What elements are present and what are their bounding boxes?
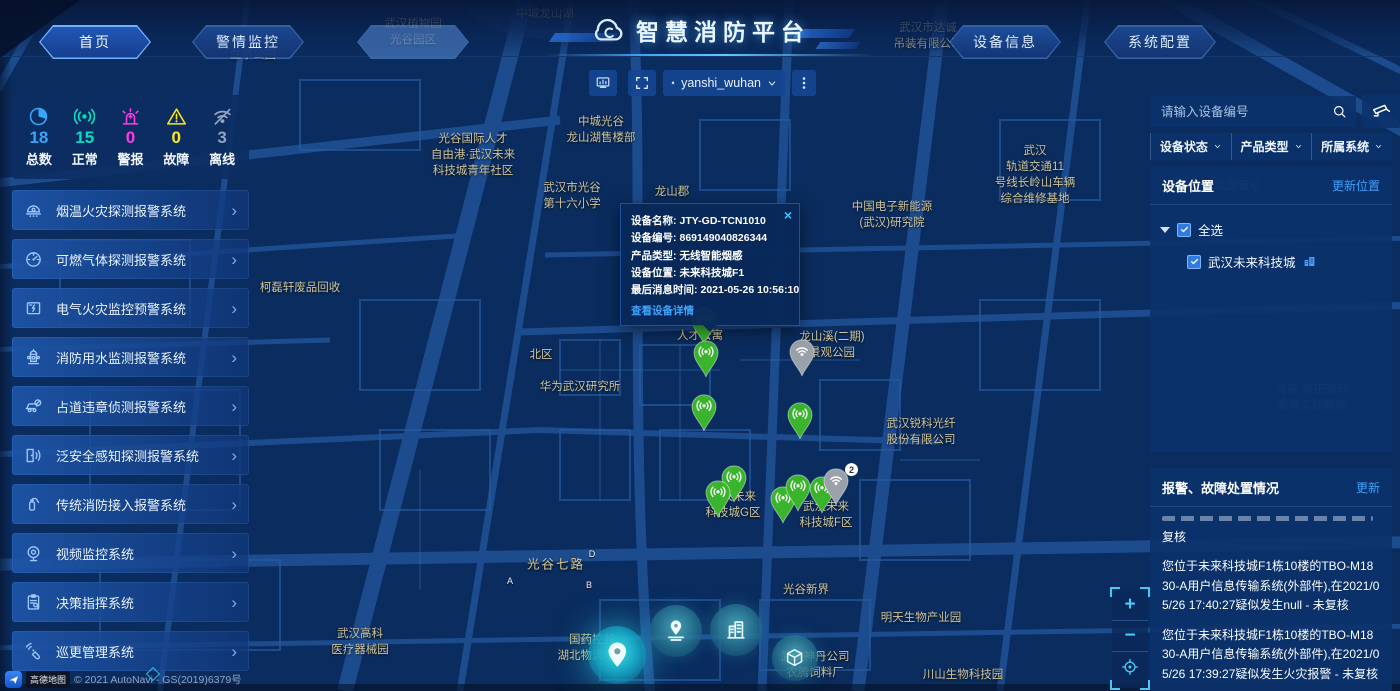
tree-row-select-all[interactable]: 全选 (1160, 220, 1382, 239)
alert-message: 复核 (1162, 516, 1380, 547)
stat-label: 正常 (72, 149, 98, 168)
menu-item-label: 决策指挥系统 (56, 593, 134, 612)
menu-item-label: 巡更管理系统 (56, 642, 134, 661)
stat-item: 15 正常 (62, 106, 108, 173)
popup-field-key: 设备位置: (631, 267, 677, 279)
device-marker[interactable] (785, 402, 815, 440)
menu-item-icon (24, 495, 43, 514)
chevron-right-icon: › (231, 398, 237, 415)
popup-row: 最后消息时间:2021-05-26 10:56:10 (631, 282, 789, 299)
system-menu-item[interactable]: 传统消防接入报警系统 › (12, 484, 249, 524)
poi-circle-icon (724, 618, 748, 642)
account-name: yanshi_wuhan (681, 76, 761, 90)
select-all-checkbox[interactable] (1177, 223, 1191, 237)
stat-label: 故障 (163, 149, 189, 168)
locate-icon (1121, 658, 1139, 676)
device-marker[interactable] (691, 340, 721, 378)
search-input[interactable] (1159, 104, 1326, 120)
tree-row-site[interactable]: 武汉未来科技城 (1160, 252, 1382, 271)
close-icon[interactable]: × (784, 208, 792, 222)
poi-circle[interactable] (650, 605, 702, 657)
stat-value: 18 (29, 128, 48, 148)
device-marker[interactable] (787, 339, 817, 377)
system-menu-item[interactable]: 可燃气体探测报警系统 › (12, 239, 249, 279)
marker-pin-icon (689, 394, 719, 432)
system-menu: 烟温火灾探测报警系统 › 可燃气体探测报警系统 › 电气火灾监控预警系统 › 消… (12, 190, 249, 671)
chevron-right-icon: › (231, 594, 237, 611)
menu-item-label: 泛安全感知探测报警系统 (56, 446, 199, 465)
popup-field-value: 2021-05-26 10:56:10 (701, 284, 800, 296)
kebab-menu-icon (796, 75, 812, 91)
copyright-text: © 2021 AutoNavi - GS(2019)6379号 (74, 672, 242, 687)
stat-item: 3 离线 (199, 106, 245, 173)
device-marker[interactable]: 2 (821, 468, 851, 506)
marker-count-badge: 2 (845, 463, 858, 476)
search-icon[interactable] (1332, 104, 1347, 119)
device-search-bar (1150, 96, 1356, 127)
menu-item-label: 视频监控系统 (56, 544, 134, 563)
view-device-details-link[interactable]: 查看设备详情 (631, 303, 789, 318)
alerts-panel-title: 报警、故障处置情况 (1162, 478, 1279, 497)
smart-fire-platform-screen: 中城龙山湖兰亭公园武汉植物园 光谷园区武汉市达诚 吊装有限公司光谷国际人才 自由… (0, 0, 1400, 691)
amap-badge: 高德地图 (26, 671, 70, 688)
stat-label: 离线 (209, 149, 235, 168)
menu-item-icon (24, 397, 43, 416)
update-location-link[interactable]: 更新位置 (1332, 177, 1380, 194)
marker-pin-icon (703, 480, 733, 518)
device-filter-bar: 设备状态 产品类型 所属系统 (1150, 133, 1392, 160)
tree-collapse-icon[interactable] (1160, 227, 1170, 233)
poi-circle-icon (664, 619, 688, 643)
system-menu-item[interactable]: 烟温火灾探测报警系统 › (12, 190, 249, 230)
device-info-popup: 设备名称:JTY-GD-TCN1010 设备编号:869149040826344… (620, 203, 800, 326)
menu-item-icon (24, 446, 43, 465)
popup-field-value: 无线智能烟感 (680, 250, 743, 262)
check-icon (1180, 225, 1189, 234)
poi-circle-icon (604, 642, 631, 669)
menu-item-icon (24, 348, 43, 367)
chevron-down-icon (1294, 143, 1303, 150)
marker-pin-icon (785, 402, 815, 440)
popup-field-value: JTY-GD-TCN1010 (680, 215, 766, 227)
tree-label: 全选 (1198, 220, 1223, 239)
cloud-logo-icon (590, 17, 626, 43)
chevron-right-icon: › (231, 202, 237, 219)
zoom-out-button[interactable]: − (1112, 620, 1148, 651)
cctv-button[interactable] (1362, 94, 1400, 128)
system-menu-item[interactable]: 电气火灾监控预警系统 › (12, 288, 249, 328)
amap-logo-icon (5, 671, 22, 688)
alerts-panel: 报警、故障处置情况 更新 复核您位于未来科技城F1栋10楼的TBO-M1830-… (1150, 468, 1392, 691)
poi-circle[interactable] (588, 626, 646, 684)
popup-row: 设备位置:未来科技城F1 (631, 265, 789, 282)
stat-value: 0 (126, 128, 135, 148)
marker-pin-icon (787, 339, 817, 377)
filter-dropdown[interactable]: 所属系统 (1311, 133, 1392, 160)
menu-item-icon (24, 299, 43, 318)
menu-item-icon (24, 250, 43, 269)
chart-tool-button[interactable] (589, 70, 617, 96)
popup-field-key: 最后消息时间: (631, 284, 698, 296)
refresh-alerts-link[interactable]: 更新 (1356, 479, 1380, 496)
popup-field-key: 设备名称: (631, 215, 677, 227)
chevron-right-icon: › (231, 545, 237, 562)
more-options-button[interactable] (792, 70, 816, 96)
corner-bracket (1140, 680, 1150, 690)
building-icon (1303, 255, 1316, 268)
poi-circle[interactable] (710, 604, 762, 656)
chevron-right-icon: › (231, 349, 237, 366)
system-menu-item[interactable]: 决策指挥系统 › (12, 582, 249, 622)
popup-row: 设备名称:JTY-GD-TCN1010 (631, 213, 789, 230)
alert-message: 您位于未来科技城F1栋10楼的TBO-M1830-A用户信息传输系统(外部件),… (1162, 626, 1380, 684)
popup-row: 产品类型:无线智能烟感 (631, 248, 789, 265)
system-menu-item[interactable]: 巡更管理系统 › (12, 631, 249, 671)
chevron-right-icon: › (231, 496, 237, 513)
popup-field-value: 869149040826344 (680, 232, 768, 244)
menu-item-label: 传统消防接入报警系统 (56, 495, 186, 514)
stat-icon (166, 106, 187, 127)
stat-icon (74, 106, 95, 127)
menu-item-label: 占道违章侦测报警系统 (56, 397, 186, 416)
stat-icon (120, 106, 141, 127)
alerts-list: 复核您位于未来科技城F1栋10楼的TBO-M1830-A用户信息传输系统(外部件… (1150, 507, 1392, 691)
device-stats-panel: 18 总数 15 正常 0 警报 0 故障 3 (12, 95, 249, 179)
stat-icon (212, 106, 233, 127)
menu-item-icon (24, 544, 43, 563)
device-marker[interactable] (689, 394, 719, 432)
corner-bracket (1110, 587, 1120, 597)
fullscreen-button[interactable] (628, 70, 656, 96)
menu-item-icon (24, 642, 43, 661)
fullscreen-icon (634, 75, 650, 91)
chevron-right-icon: › (231, 251, 237, 268)
system-menu-item[interactable]: 泛安全感知探测报警系统 › (12, 435, 249, 475)
stat-item: 18 总数 (16, 106, 62, 173)
alert-message: 您位于未来科技城F1栋10楼的TBO-M1830-A用户信息传输系统(外部件),… (1162, 557, 1380, 615)
stat-value: 15 (75, 128, 94, 148)
chevron-down-icon (1374, 143, 1383, 150)
chevron-down-icon (767, 79, 777, 88)
filter-label: 设备状态 (1160, 138, 1208, 155)
page-title: 智慧消防平台 (636, 13, 810, 47)
filter-label: 产品类型 (1241, 138, 1289, 155)
corner-bracket (1110, 680, 1120, 690)
menu-item-label: 烟温火灾探测报警系统 (56, 201, 186, 220)
filter-dropdown[interactable]: 产品类型 (1231, 133, 1312, 160)
popup-row: 设备编号:869149040826344 (631, 230, 789, 247)
locate-button[interactable] (1112, 651, 1148, 682)
popup-field-key: 设备编号: (631, 232, 677, 244)
left-frame-shade (0, 56, 12, 691)
chevron-right-icon: › (231, 447, 237, 464)
map-zoom-control: + − (1112, 589, 1148, 688)
poi-circle[interactable] (772, 635, 818, 681)
chevron-right-icon: › (231, 643, 237, 660)
stat-label: 警报 (117, 149, 143, 168)
title-streak (816, 42, 861, 49)
bell-icon (671, 75, 675, 91)
system-menu-item[interactable]: 消防用水监测报警系统 › (12, 337, 249, 377)
device-location-panel: 设备位置 更新位置 全选 武汉未来科技城 (1150, 166, 1392, 452)
chevron-right-icon: › (231, 300, 237, 317)
stat-value: 0 (172, 128, 181, 148)
alerts-panel-header: 报警、故障处置情况 更新 (1150, 468, 1392, 507)
corner-decoration (0, 0, 80, 58)
device-marker[interactable] (703, 480, 733, 518)
system-menu-item[interactable]: 占道违章侦测报警系统 › (12, 386, 249, 426)
location-tree: 全选 武汉未来科技城 (1150, 205, 1392, 299)
popup-field-key: 产品类型: (631, 250, 677, 262)
stat-item: 0 故障 (153, 106, 199, 173)
stat-icon (28, 106, 49, 127)
title-underline (545, 54, 875, 56)
stat-item: 0 警报 (108, 106, 154, 173)
location-panel-title: 设备位置 (1162, 176, 1214, 195)
marker-pin-icon (691, 340, 721, 378)
map-attribution: 高德地图 © 2021 AutoNavi - GS(2019)6379号 (5, 671, 242, 688)
stat-label: 总数 (26, 149, 52, 168)
chevron-down-icon (1213, 143, 1222, 150)
location-panel-header: 设备位置 更新位置 (1150, 166, 1392, 205)
popup-field-value: 未来科技城F1 (680, 267, 745, 279)
poi-circle-icon (784, 647, 805, 668)
corner-bracket (1140, 587, 1150, 597)
menu-item-label: 电气火灾监控预警系统 (56, 299, 186, 318)
account-dropdown[interactable]: yanshi_wuhan (663, 70, 785, 96)
menu-item-label: 可燃气体探测报警系统 (56, 250, 186, 269)
system-menu-item[interactable]: 视频监控系统 › (12, 533, 249, 573)
filter-dropdown[interactable]: 设备状态 (1150, 133, 1231, 160)
chart-icon (595, 75, 611, 91)
site-checkbox[interactable] (1187, 255, 1201, 269)
stat-value: 3 (217, 128, 226, 148)
menu-item-icon (24, 593, 43, 612)
cctv-camera-icon (1371, 101, 1392, 122)
tree-label: 武汉未来科技城 (1208, 252, 1296, 271)
menu-item-icon (24, 201, 43, 220)
check-icon (1190, 257, 1199, 266)
platform-brand: 智慧消防平台 (590, 13, 810, 47)
filter-label: 所属系统 (1321, 138, 1369, 155)
menu-item-label: 消防用水监测报警系统 (56, 348, 186, 367)
